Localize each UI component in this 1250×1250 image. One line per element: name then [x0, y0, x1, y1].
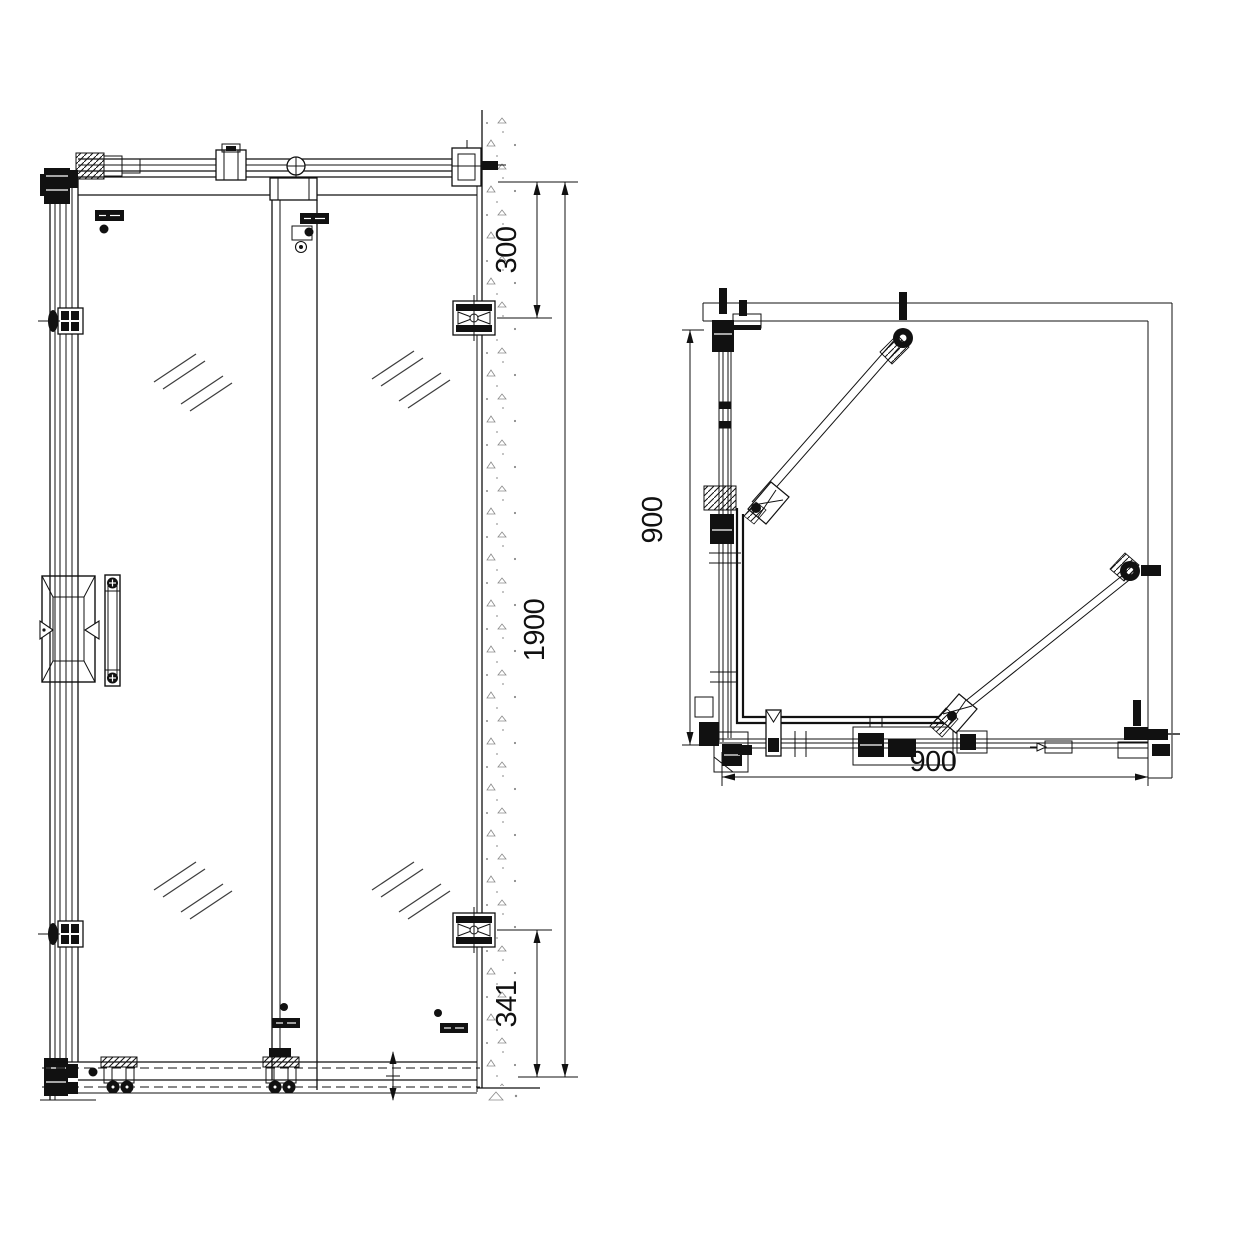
hinge-label-bottom-center: [272, 1003, 300, 1028]
post-clamp-lower: [38, 921, 83, 947]
glass-panels: [78, 178, 477, 1090]
hinge-label-bottom-right: [434, 1009, 468, 1033]
dim-text-341: 341: [491, 981, 523, 1028]
glass-mark-3: [154, 862, 232, 919]
dim-text-900-bottom: 900: [910, 746, 957, 778]
technical-drawing-canvas: 300 341 1900: [0, 0, 1250, 1250]
wall-anchor-stub: [481, 161, 498, 170]
dim-text-300: 300: [491, 227, 523, 274]
plan-handle: [766, 710, 781, 756]
glass-mark-2: [372, 351, 450, 408]
plate-clip-right: [85, 621, 99, 639]
plan-walls: [703, 303, 1172, 778]
plan-bottom-right-clamp: [1118, 700, 1180, 758]
bottom-rail: [42, 1048, 480, 1101]
dim-text-900-left: 900: [637, 497, 669, 544]
plan-left-bracket: [719, 402, 731, 428]
bar-connector: [216, 144, 246, 180]
support-bar-right: [853, 553, 1161, 765]
support-wall-mount-right: [1110, 553, 1161, 581]
wall-clamp-upper: [453, 295, 495, 341]
post-clamp-upper: [38, 308, 83, 334]
handle-bar[interactable]: [105, 575, 120, 686]
wall-clamp-lower: [453, 907, 495, 953]
plate-clip-left: [40, 621, 53, 639]
glass-mark-1: [154, 354, 232, 411]
bar-end-fitting: [76, 153, 104, 179]
cad-drawing: 300 341 1900: [0, 0, 1250, 1250]
hinge-label-top-left: [95, 210, 124, 234]
front-elevation-view: 300 341 1900: [38, 110, 578, 1101]
glass-mark-4: [372, 862, 450, 919]
hinge-label-top-center: [300, 213, 329, 237]
door-handle: [40, 575, 120, 686]
dimension-900-bottom: 900: [722, 746, 1148, 786]
roller-left: [101, 1057, 137, 1094]
dim-text-1900: 1900: [519, 599, 551, 662]
support-bar-left: [704, 292, 913, 563]
plan-door-frames: [737, 508, 950, 723]
plan-top-wall-clamp: [712, 288, 761, 352]
post-bottom-bracket: [40, 1058, 98, 1100]
dimension-900-left: 900: [637, 330, 704, 745]
plan-glass-ticks: [795, 731, 806, 757]
dimension-1900: 1900: [519, 182, 569, 1077]
plan-view: 900 900: [637, 288, 1180, 786]
support-joint-left: [704, 482, 789, 563]
